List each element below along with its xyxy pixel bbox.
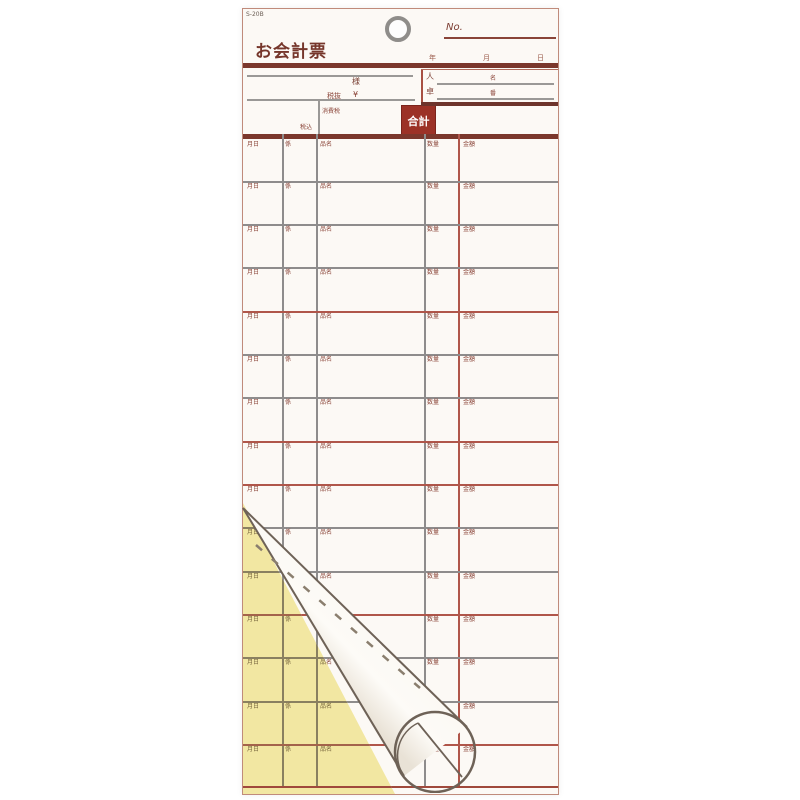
title-rule (243, 63, 558, 68)
row-label-2: 係 (285, 314, 291, 320)
receipt-number-label: No. (446, 22, 463, 33)
row-label-5: 金額 (463, 142, 475, 148)
row-label-1: 月日 (247, 270, 259, 276)
grid-column-line (458, 134, 460, 788)
row-label-1: 月日 (247, 617, 259, 623)
guest-count-line (437, 83, 554, 85)
guest-count-unit: 名 (490, 73, 496, 82)
row-label-3: 品名 (320, 400, 332, 406)
row-label-1: 月日 (247, 530, 259, 536)
row-label-5: 金額 (463, 314, 475, 320)
row-label-3: 品名 (320, 142, 332, 148)
row-label-2: 係 (285, 487, 291, 493)
guest-block-bottom-border (421, 102, 558, 106)
row-label-5: 金額 (463, 660, 475, 666)
row-label-2: 係 (285, 530, 291, 536)
row-label-3: 品名 (320, 617, 332, 623)
date-unit-day: 日 (537, 53, 544, 63)
guest-block-border (421, 69, 423, 103)
tax-included-label: 税込 (300, 122, 312, 131)
row-label-4: 数量 (427, 270, 439, 276)
row-label-2: 係 (285, 400, 291, 406)
yen-sign: ¥ (353, 90, 358, 99)
row-label-2: 係 (285, 704, 291, 710)
row-label-4: 数量 (427, 747, 439, 753)
row-label-4: 数量 (427, 617, 439, 623)
row-label-3: 品名 (320, 574, 332, 580)
row-label-5: 金額 (463, 444, 475, 450)
consumption-tax-label: 消費税 (322, 106, 340, 115)
row-label-4: 数量 (427, 227, 439, 233)
row-label-3: 品名 (320, 314, 332, 320)
row-label-2: 係 (285, 227, 291, 233)
row-label-1: 月日 (247, 227, 259, 233)
photo-background: 月日係品名数量金額月日係品名数量金額月日係品名数量金額月日係品名数量金額月日係品… (0, 0, 800, 800)
row-label-3: 品名 (320, 747, 332, 753)
row-label-3: 品名 (320, 270, 332, 276)
row-label-5: 金額 (463, 400, 475, 406)
row-label-5: 金額 (463, 704, 475, 710)
form-title: お会計票 (255, 37, 327, 62)
row-label-3: 品名 (320, 487, 332, 493)
row-label-3: 品名 (320, 227, 332, 233)
table-number-label: 卓 (426, 86, 434, 97)
row-label-5: 金額 (463, 574, 475, 580)
row-label-2: 係 (285, 660, 291, 666)
row-label-4: 数量 (427, 487, 439, 493)
row-label-3: 品名 (320, 530, 332, 536)
total-box: 合計 (401, 105, 436, 136)
row-label-2: 係 (285, 357, 291, 363)
row-label-1: 月日 (247, 487, 259, 493)
date-unit-year: 年 (429, 53, 436, 63)
row-label-4: 数量 (427, 142, 439, 148)
row-label-3: 品名 (320, 184, 332, 190)
row-label-1: 月日 (247, 704, 259, 710)
row-label-5: 金額 (463, 530, 475, 536)
row-label-1: 月日 (247, 314, 259, 320)
row-label-1: 月日 (247, 400, 259, 406)
date-unit-month: 月 (483, 53, 490, 63)
row-label-4: 数量 (427, 530, 439, 536)
table-number-unit: 番 (490, 88, 496, 97)
row-label-4: 数量 (427, 574, 439, 580)
row-label-2: 係 (285, 574, 291, 580)
row-label-5: 金額 (463, 270, 475, 276)
row-label-4: 数量 (427, 444, 439, 450)
punch-hole-icon (385, 16, 411, 42)
customer-name-line (247, 75, 413, 77)
receipt-number-line (444, 37, 556, 39)
name-suffix-label: 様 (352, 76, 360, 87)
row-label-1: 月日 (247, 357, 259, 363)
row-label-1: 月日 (247, 574, 259, 580)
row-label-2: 係 (285, 184, 291, 190)
row-label-1: 月日 (247, 444, 259, 450)
row-label-4: 数量 (427, 314, 439, 320)
form-header: S-20B No. 年 月 日 お会計票 様 税抜 ¥ 税込 消費税 合計 (243, 9, 558, 139)
subtotal-cell-divider (318, 101, 320, 134)
guest-count-label: 人 (426, 71, 434, 82)
row-label-1: 月日 (247, 142, 259, 148)
table-top-rule (243, 134, 558, 139)
row-label-2: 係 (285, 142, 291, 148)
tax-excluded-line (247, 99, 415, 101)
row-label-4: 数量 (427, 357, 439, 363)
row-label-2: 係 (285, 270, 291, 276)
table-number-line (437, 98, 554, 100)
total-label: 合計 (408, 113, 430, 129)
row-label-5: 金額 (463, 184, 475, 190)
guest-block-top-border (421, 69, 558, 70)
row-label-3: 品名 (320, 704, 332, 710)
row-label-4: 数量 (427, 660, 439, 666)
row-label-5: 金額 (463, 357, 475, 363)
receipt-form-paper: 月日係品名数量金額月日係品名数量金額月日係品名数量金額月日係品名数量金額月日係品… (242, 8, 559, 795)
grid-column-line (424, 134, 426, 788)
row-label-3: 品名 (320, 444, 332, 450)
row-label-5: 金額 (463, 747, 475, 753)
row-label-3: 品名 (320, 357, 332, 363)
row-label-1: 月日 (247, 747, 259, 753)
row-label-5: 金額 (463, 227, 475, 233)
row-label-5: 金額 (463, 617, 475, 623)
row-label-1: 月日 (247, 184, 259, 190)
row-label-4: 数量 (427, 400, 439, 406)
row-label-5: 金額 (463, 487, 475, 493)
row-label-4: 数量 (427, 704, 439, 710)
row-label-2: 係 (285, 444, 291, 450)
product-code: S-20B (246, 11, 264, 18)
row-label-1: 月日 (247, 660, 259, 666)
row-label-2: 係 (285, 747, 291, 753)
row-label-4: 数量 (427, 184, 439, 190)
row-label-2: 係 (285, 617, 291, 623)
